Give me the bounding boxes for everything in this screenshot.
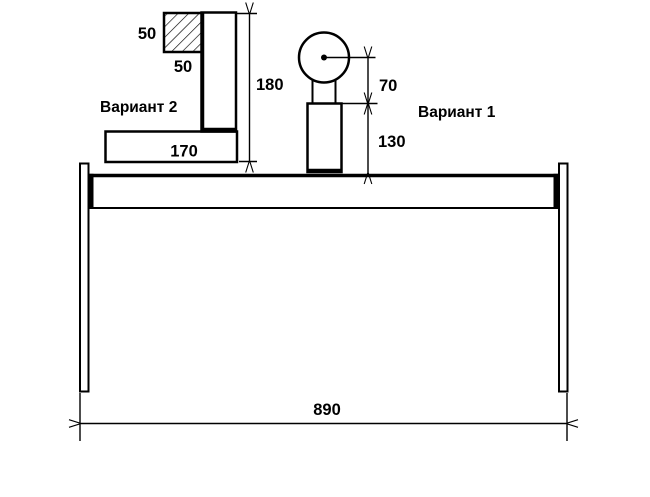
variant2-column [202,13,237,132]
dim130-value: 130 [378,133,406,151]
variant2-hatched-block [164,13,202,52]
left-end-plate [80,164,89,392]
dim50-bottom-value: 50 [174,58,192,76]
beam-left-cap [89,174,94,209]
variant1-post [308,104,342,173]
beam-right-cap [554,174,559,209]
dim180-value: 180 [256,76,284,94]
drawing-svg: 180 50 50 170 Вариант 2 70 130 Вариант 1… [0,0,650,497]
variant1-label: Вариант 1 [418,104,496,121]
variant2-label: Вариант 2 [100,99,177,116]
dim70-value: 70 [379,77,397,95]
technical-drawing-canvas: 180 50 50 170 Вариант 2 70 130 Вариант 1… [0,0,650,497]
dim50-left-value: 50 [138,25,156,43]
dim170-value: 170 [170,143,198,161]
right-end-plate [559,164,568,392]
dim890-value: 890 [313,401,341,419]
